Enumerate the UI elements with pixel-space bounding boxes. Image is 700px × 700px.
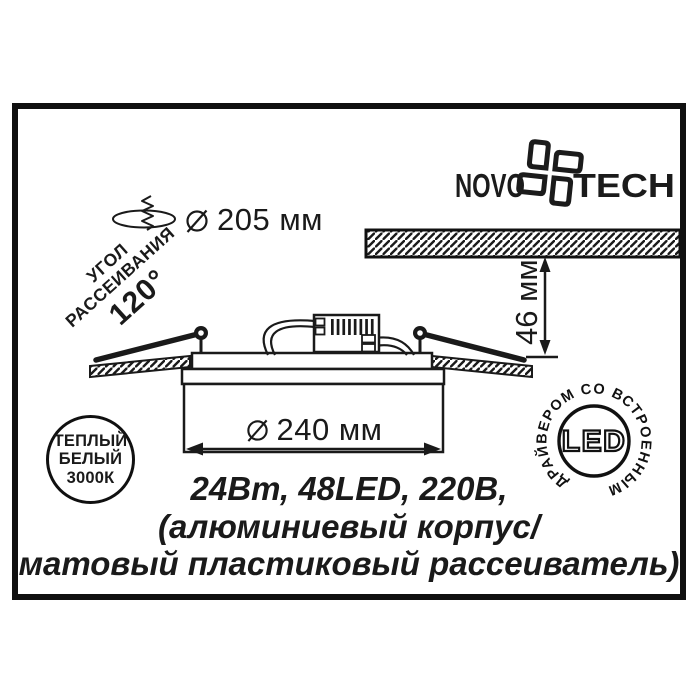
spec-text-block: 24Вт, 48LED, 220В, (алюминиевый корпус/ … <box>12 470 686 583</box>
recess-height-label: 46 мм <box>509 271 543 345</box>
brand-logo: NOVO TECH <box>440 130 680 214</box>
spec-line-diffuser: матовый пластиковый рассеиватель) <box>12 545 686 583</box>
color-temp-line2: БЕЛЫЙ <box>59 450 122 468</box>
mounting-plate <box>192 353 432 369</box>
ceiling-section <box>366 230 680 257</box>
trim-ring <box>182 369 444 384</box>
driver-box <box>314 315 379 352</box>
body-diameter-value: 240 мм <box>277 412 383 448</box>
color-temp-line1: ТЕПЛЫЙ <box>54 432 128 450</box>
brand-logo-text-right: TECH <box>573 167 675 204</box>
spec-line-power: 24Вт, 48LED, 220В, <box>12 470 686 508</box>
spec-sheet: NOVO TECH 205 мм 240 мм 46 мм УГОЛ РАССЕ… <box>0 0 700 700</box>
spec-line-housing: (алюминиевый корпус/ <box>12 508 686 546</box>
cutout-diameter-value: 205 мм <box>217 202 323 238</box>
body-diameter-label: 240 мм <box>184 412 443 448</box>
diameter-symbol-icon <box>245 416 270 444</box>
brand-logo-text-left: NOVO <box>455 167 525 204</box>
led-badge-center-text: LED <box>562 425 627 458</box>
fixture-diagram <box>0 0 700 700</box>
